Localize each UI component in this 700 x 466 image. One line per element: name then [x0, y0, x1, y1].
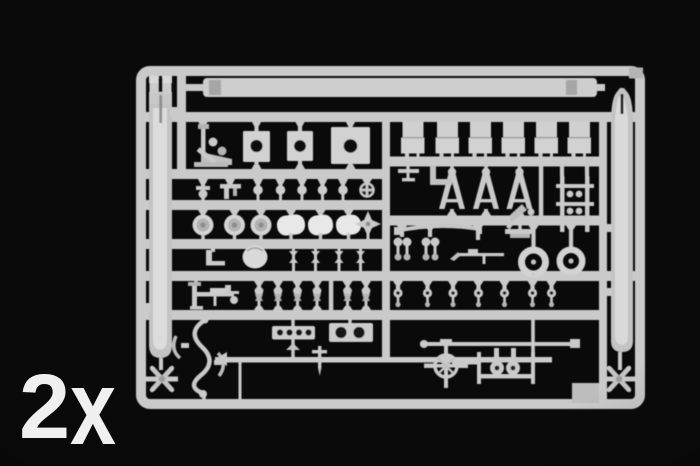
svg-text:x: x [70, 349, 116, 466]
svg-text:2: 2 [19, 356, 70, 458]
